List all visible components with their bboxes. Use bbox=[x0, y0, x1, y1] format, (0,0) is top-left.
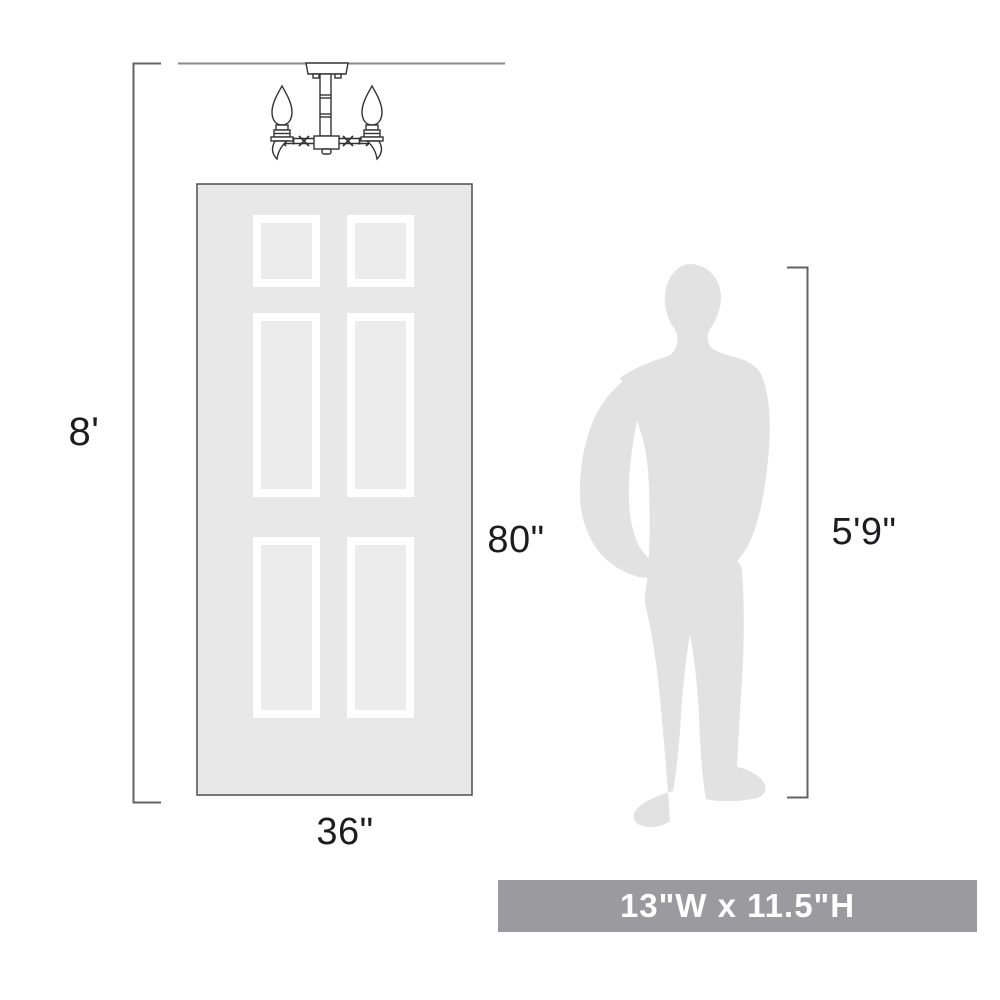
person-height-dimension-line bbox=[787, 268, 808, 798]
fixture-stem bbox=[320, 74, 331, 136]
light-fixture-drawing bbox=[271, 63, 383, 159]
door-height-label: 80" bbox=[478, 521, 554, 559]
ceiling-height-label: 8' bbox=[48, 412, 120, 452]
size-comparison-diagram: 8' 80" 36" 5'9" 13"W x 11.5"H bbox=[0, 0, 1000, 1000]
fixture-canopy bbox=[306, 63, 348, 74]
ceiling-height-dimension-line bbox=[134, 64, 162, 803]
door-width-label: 36" bbox=[293, 813, 397, 851]
fixture-hub bbox=[314, 136, 339, 149]
door-slab bbox=[197, 184, 472, 795]
fixture-candle-right bbox=[361, 86, 383, 159]
door-panel bbox=[253, 537, 320, 718]
door bbox=[197, 184, 472, 795]
person-height-label: 5'9" bbox=[816, 513, 912, 551]
door-panel bbox=[347, 313, 414, 497]
door-panel bbox=[253, 313, 320, 497]
person-silhouette bbox=[580, 264, 770, 827]
door-panel bbox=[253, 215, 320, 287]
product-size-banner: 13"W x 11.5"H bbox=[498, 880, 977, 932]
door-panel bbox=[347, 215, 414, 287]
door-panel bbox=[347, 537, 414, 718]
fixture-candle-left bbox=[271, 86, 293, 159]
diagram-graphics bbox=[0, 0, 1000, 1000]
